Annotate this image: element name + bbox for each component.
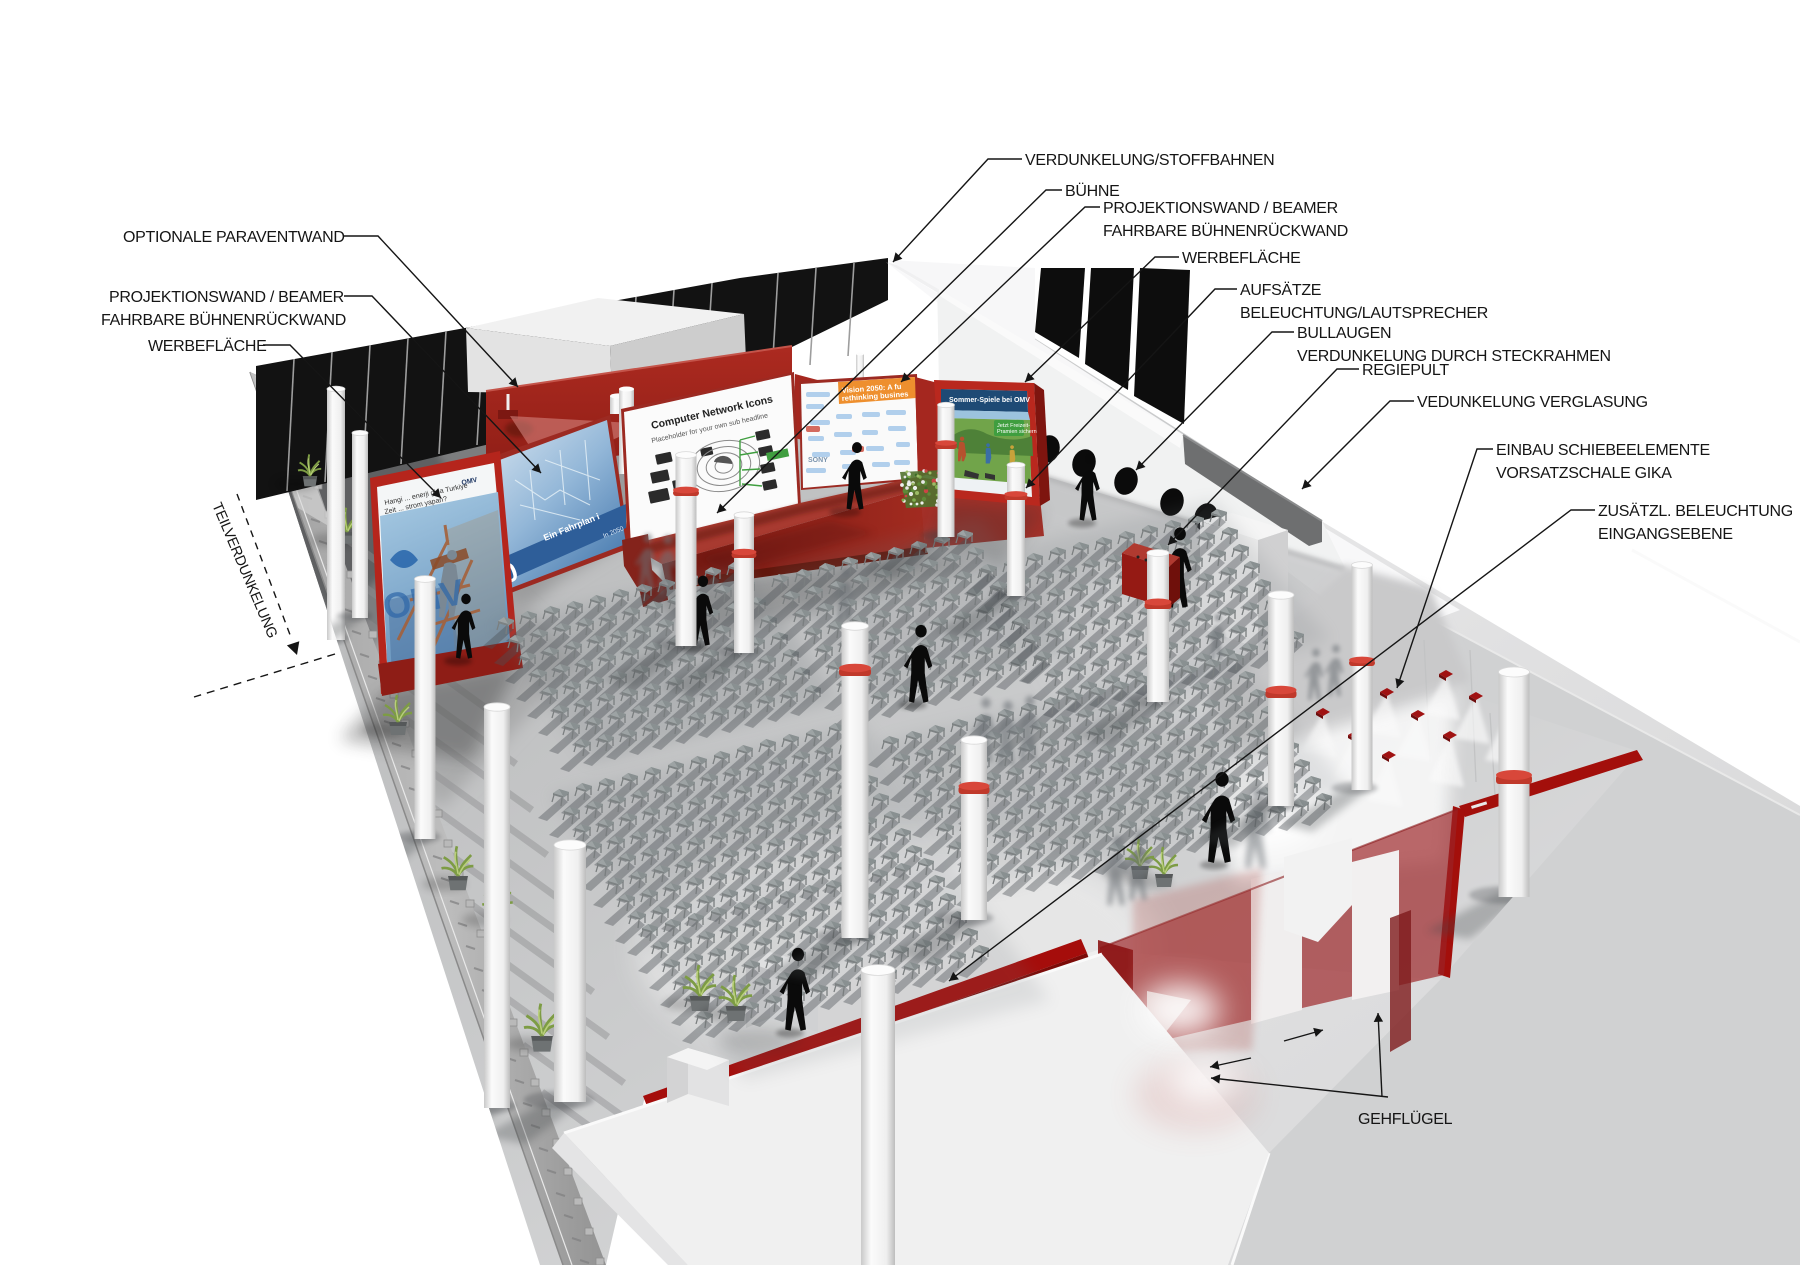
svg-text:WERBEFLÄCHE: WERBEFLÄCHE — [1182, 249, 1301, 267]
svg-text:VERDUNKELUNG/STOFFBAHNEN: VERDUNKELUNG/STOFFBAHNEN — [1025, 152, 1274, 169]
svg-text:SONY: SONY — [808, 457, 828, 464]
svg-text:VORSATZSCHALE GIKA: VORSATZSCHALE GIKA — [1496, 465, 1672, 482]
svg-text:BELEUCHTUNG/LAUTSPRECHER: BELEUCHTUNG/LAUTSPRECHER — [1240, 305, 1488, 322]
svg-text:FAHRBARE BÜHNENRÜCKWAND: FAHRBARE BÜHNENRÜCKWAND — [1103, 222, 1348, 240]
svg-text:REGIEPULT: REGIEPULT — [1362, 362, 1449, 379]
svg-text:OPTIONALE PARAVENTWAND: OPTIONALE PARAVENTWAND — [123, 229, 345, 246]
svg-text:BÜHNE: BÜHNE — [1065, 182, 1120, 200]
svg-text:EINGANGSEBENE: EINGANGSEBENE — [1598, 526, 1733, 543]
svg-text:Sommer-Spiele bei OMV: Sommer-Spiele bei OMV — [949, 397, 1030, 404]
svg-text:AUFSÄTZE: AUFSÄTZE — [1240, 281, 1321, 299]
svg-text:ZUSÄTZL. BELEUCHTUNG: ZUSÄTZL. BELEUCHTUNG — [1598, 502, 1793, 520]
svg-text:VEDUNKELUNG VERGLASUNG: VEDUNKELUNG VERGLASUNG — [1417, 394, 1648, 411]
svg-text:PROJEKTIONSWAND / BEAMER: PROJEKTIONSWAND / BEAMER — [1103, 200, 1338, 217]
svg-text:EINBAU SCHIEBEELEMENTE: EINBAU SCHIEBEELEMENTE — [1496, 442, 1710, 459]
svg-text:Pramien sichern: Pramien sichern — [997, 429, 1037, 435]
svg-text:VERDUNKELUNG DURCH STECKRAHMEN: VERDUNKELUNG DURCH STECKRAHMEN — [1297, 348, 1611, 365]
svg-text:PROJEKTIONSWAND / BEAMER: PROJEKTIONSWAND / BEAMER — [109, 289, 344, 306]
svg-text:WERBEFLÄCHE: WERBEFLÄCHE — [148, 337, 267, 355]
svg-text:FAHRBARE BÜHNENRÜCKWAND: FAHRBARE BÜHNENRÜCKWAND — [101, 311, 346, 329]
svg-text:BULLAUGEN: BULLAUGEN — [1297, 325, 1391, 342]
svg-text:GEHFLÜGEL: GEHFLÜGEL — [1358, 1110, 1453, 1128]
